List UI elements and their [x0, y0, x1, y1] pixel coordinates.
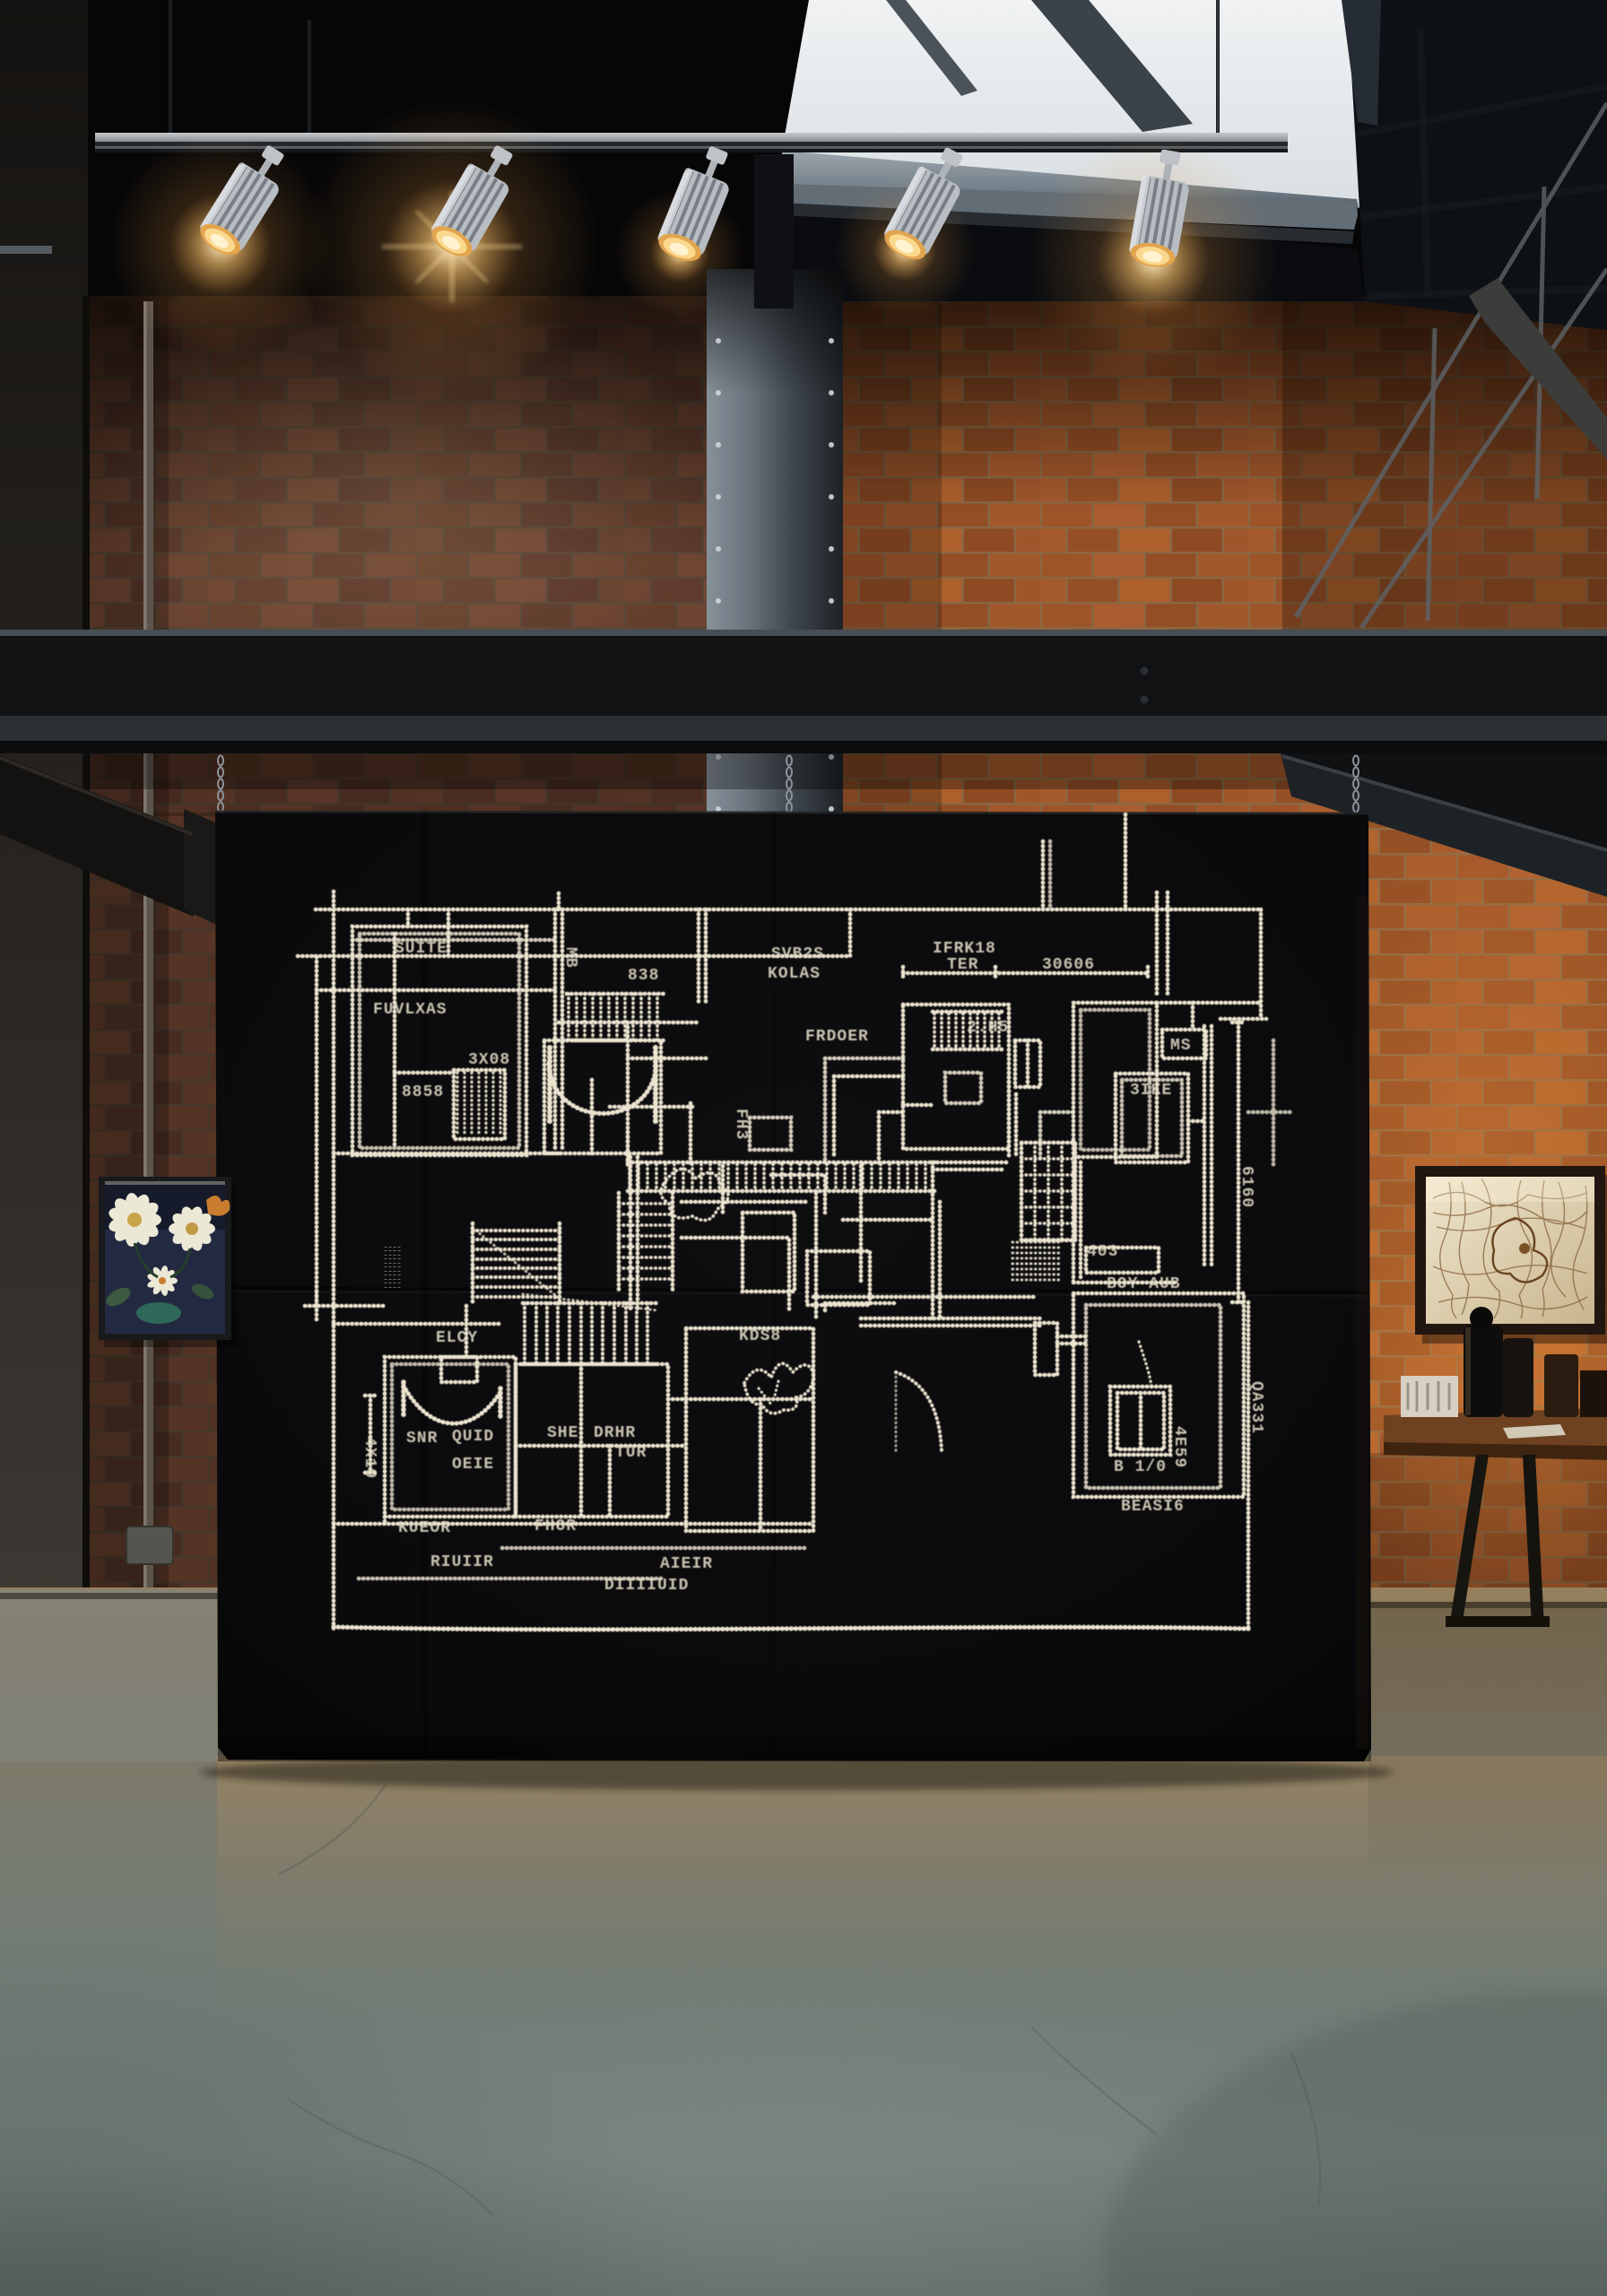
svg-text:FRDOER: FRDOER: [805, 1028, 869, 1046]
svg-text:TER: TER: [947, 956, 978, 974]
svg-text:4E59: 4E59: [1170, 1426, 1188, 1468]
svg-text:FUVLXAS: FUVLXAS: [373, 1001, 447, 1019]
svg-text:KOLAS: KOLAS: [768, 965, 821, 983]
svg-text:SHE: SHE: [547, 1424, 578, 1442]
svg-text:RIUIIR: RIUIIR: [430, 1553, 494, 1571]
svg-text:SUITE: SUITE: [395, 940, 447, 958]
svg-text:ELCY: ELCY: [436, 1329, 478, 1347]
svg-text:QUID: QUID: [452, 1428, 494, 1446]
svg-text:B 1/0: B 1/0: [1114, 1458, 1167, 1476]
svg-text:AIEIR: AIEIR: [660, 1555, 713, 1573]
svg-text:IFRK18: IFRK18: [933, 940, 996, 958]
svg-text:KDS8: KDS8: [739, 1327, 781, 1345]
svg-text:TUR: TUR: [615, 1444, 647, 1462]
svg-text:403: 403: [1087, 1243, 1118, 1261]
svg-text:FHOR: FHOR: [534, 1518, 577, 1535]
svg-text:QA331: QA331: [1247, 1381, 1265, 1434]
svg-text:4X19: 4X19: [360, 1437, 378, 1479]
svg-text:BEASI6: BEASI6: [1121, 1498, 1185, 1516]
svg-text:BOY AUB: BOY AUB: [1107, 1275, 1181, 1293]
svg-text:DRHR: DRHR: [594, 1424, 636, 1442]
svg-text:SVB2S: SVB2S: [771, 945, 824, 963]
svg-text:OEIE: OEIE: [452, 1456, 494, 1474]
svg-text:DIIIIUID: DIIIIUID: [604, 1577, 689, 1595]
svg-text:3X08: 3X08: [468, 1051, 510, 1069]
svg-text:MB: MB: [561, 947, 579, 969]
svg-text:3IKE: 3IKE: [1130, 1082, 1172, 1100]
svg-text:SNR: SNR: [406, 1430, 438, 1448]
svg-text:6160: 6160: [1238, 1166, 1255, 1208]
svg-text:FH3: FH3: [732, 1109, 750, 1140]
svg-text:2.H5: 2.H5: [967, 1019, 1009, 1037]
svg-text:MS: MS: [1170, 1037, 1192, 1055]
svg-text:8858: 8858: [402, 1083, 444, 1101]
svg-text:30606: 30606: [1042, 956, 1095, 974]
svg-text:838: 838: [628, 967, 659, 985]
svg-text:KUEOR: KUEOR: [398, 1519, 451, 1537]
